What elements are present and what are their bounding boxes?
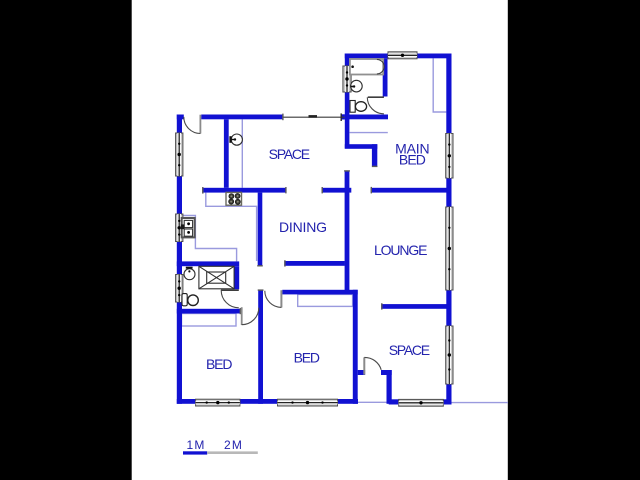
- svg-text:LOUNGE: LOUNGE: [374, 242, 428, 258]
- svg-text:SPACE: SPACE: [269, 146, 311, 162]
- svg-text:BED: BED: [206, 356, 233, 372]
- svg-text:1M: 1M: [186, 438, 205, 452]
- svg-text:BED: BED: [399, 151, 426, 167]
- svg-text:DINING: DINING: [279, 219, 327, 235]
- svg-text:SPACE: SPACE: [389, 342, 430, 358]
- svg-text:BED: BED: [294, 349, 320, 365]
- svg-text:2M: 2M: [224, 438, 243, 452]
